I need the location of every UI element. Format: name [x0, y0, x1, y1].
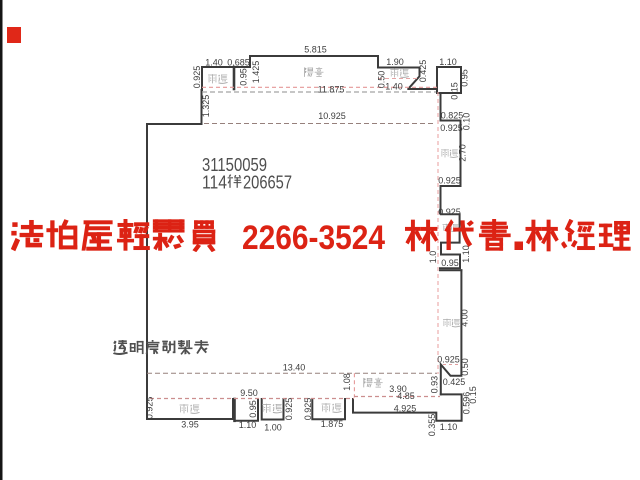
svg-text:1.08: 1.08: [342, 373, 352, 391]
svg-text:1.0: 1.0: [428, 251, 438, 264]
svg-text:10.925: 10.925: [318, 111, 346, 121]
svg-text:1.875: 1.875: [321, 419, 344, 429]
svg-text:5.815: 5.815: [304, 45, 327, 55]
svg-text:0.425: 0.425: [418, 60, 428, 83]
svg-text:114: 114: [202, 173, 227, 193]
svg-text:0.596: 0.596: [462, 392, 472, 415]
svg-text:2.70: 2.70: [458, 144, 468, 162]
svg-text:1.40: 1.40: [205, 58, 223, 68]
svg-text:0.15: 0.15: [450, 82, 460, 100]
svg-text:0.925: 0.925: [284, 398, 294, 421]
svg-text:0.50: 0.50: [460, 358, 470, 376]
svg-text:0.95: 0.95: [441, 258, 459, 268]
svg-text:0.355: 0.355: [427, 414, 437, 437]
svg-text:0.93: 0.93: [430, 376, 440, 394]
svg-text:0.50: 0.50: [377, 71, 387, 89]
svg-text:0.10: 0.10: [462, 113, 472, 131]
svg-text:1.00: 1.00: [264, 423, 282, 433]
svg-text:1.40: 1.40: [385, 82, 403, 92]
svg-text:1.90: 1.90: [386, 57, 404, 67]
svg-text:0.925: 0.925: [192, 66, 202, 89]
svg-text:206657: 206657: [243, 173, 292, 193]
svg-text:4.00: 4.00: [460, 309, 470, 327]
svg-text:1.10: 1.10: [439, 57, 457, 67]
svg-text:0.925: 0.925: [438, 176, 461, 186]
svg-text:0.95: 0.95: [460, 69, 470, 87]
svg-text:0.825: 0.825: [441, 111, 464, 121]
svg-text:0.925: 0.925: [440, 123, 463, 133]
svg-text:2266-3524: 2266-3524: [242, 219, 385, 257]
svg-text:4.925: 4.925: [394, 403, 417, 413]
svg-text:1.10: 1.10: [461, 245, 471, 263]
svg-text:1.325: 1.325: [201, 95, 211, 118]
svg-text:3.95: 3.95: [181, 420, 199, 430]
svg-text:0.925: 0.925: [303, 398, 313, 421]
svg-text:0.925: 0.925: [437, 354, 460, 364]
svg-text:0.95: 0.95: [248, 400, 258, 418]
svg-text:1.10: 1.10: [440, 422, 458, 432]
svg-text:13.40: 13.40: [283, 363, 306, 373]
svg-text:0.925: 0.925: [438, 207, 461, 217]
svg-text:11.875: 11.875: [318, 85, 345, 95]
svg-text:4.85: 4.85: [397, 391, 415, 401]
svg-text:0.95: 0.95: [239, 68, 249, 86]
svg-text:0.685: 0.685: [227, 58, 250, 68]
svg-text:1.425: 1.425: [251, 61, 261, 84]
svg-text:0.925: 0.925: [145, 397, 155, 420]
svg-text:0.425: 0.425: [443, 377, 466, 387]
svg-text:9.50: 9.50: [240, 388, 258, 398]
svg-text:1.10: 1.10: [239, 420, 257, 430]
